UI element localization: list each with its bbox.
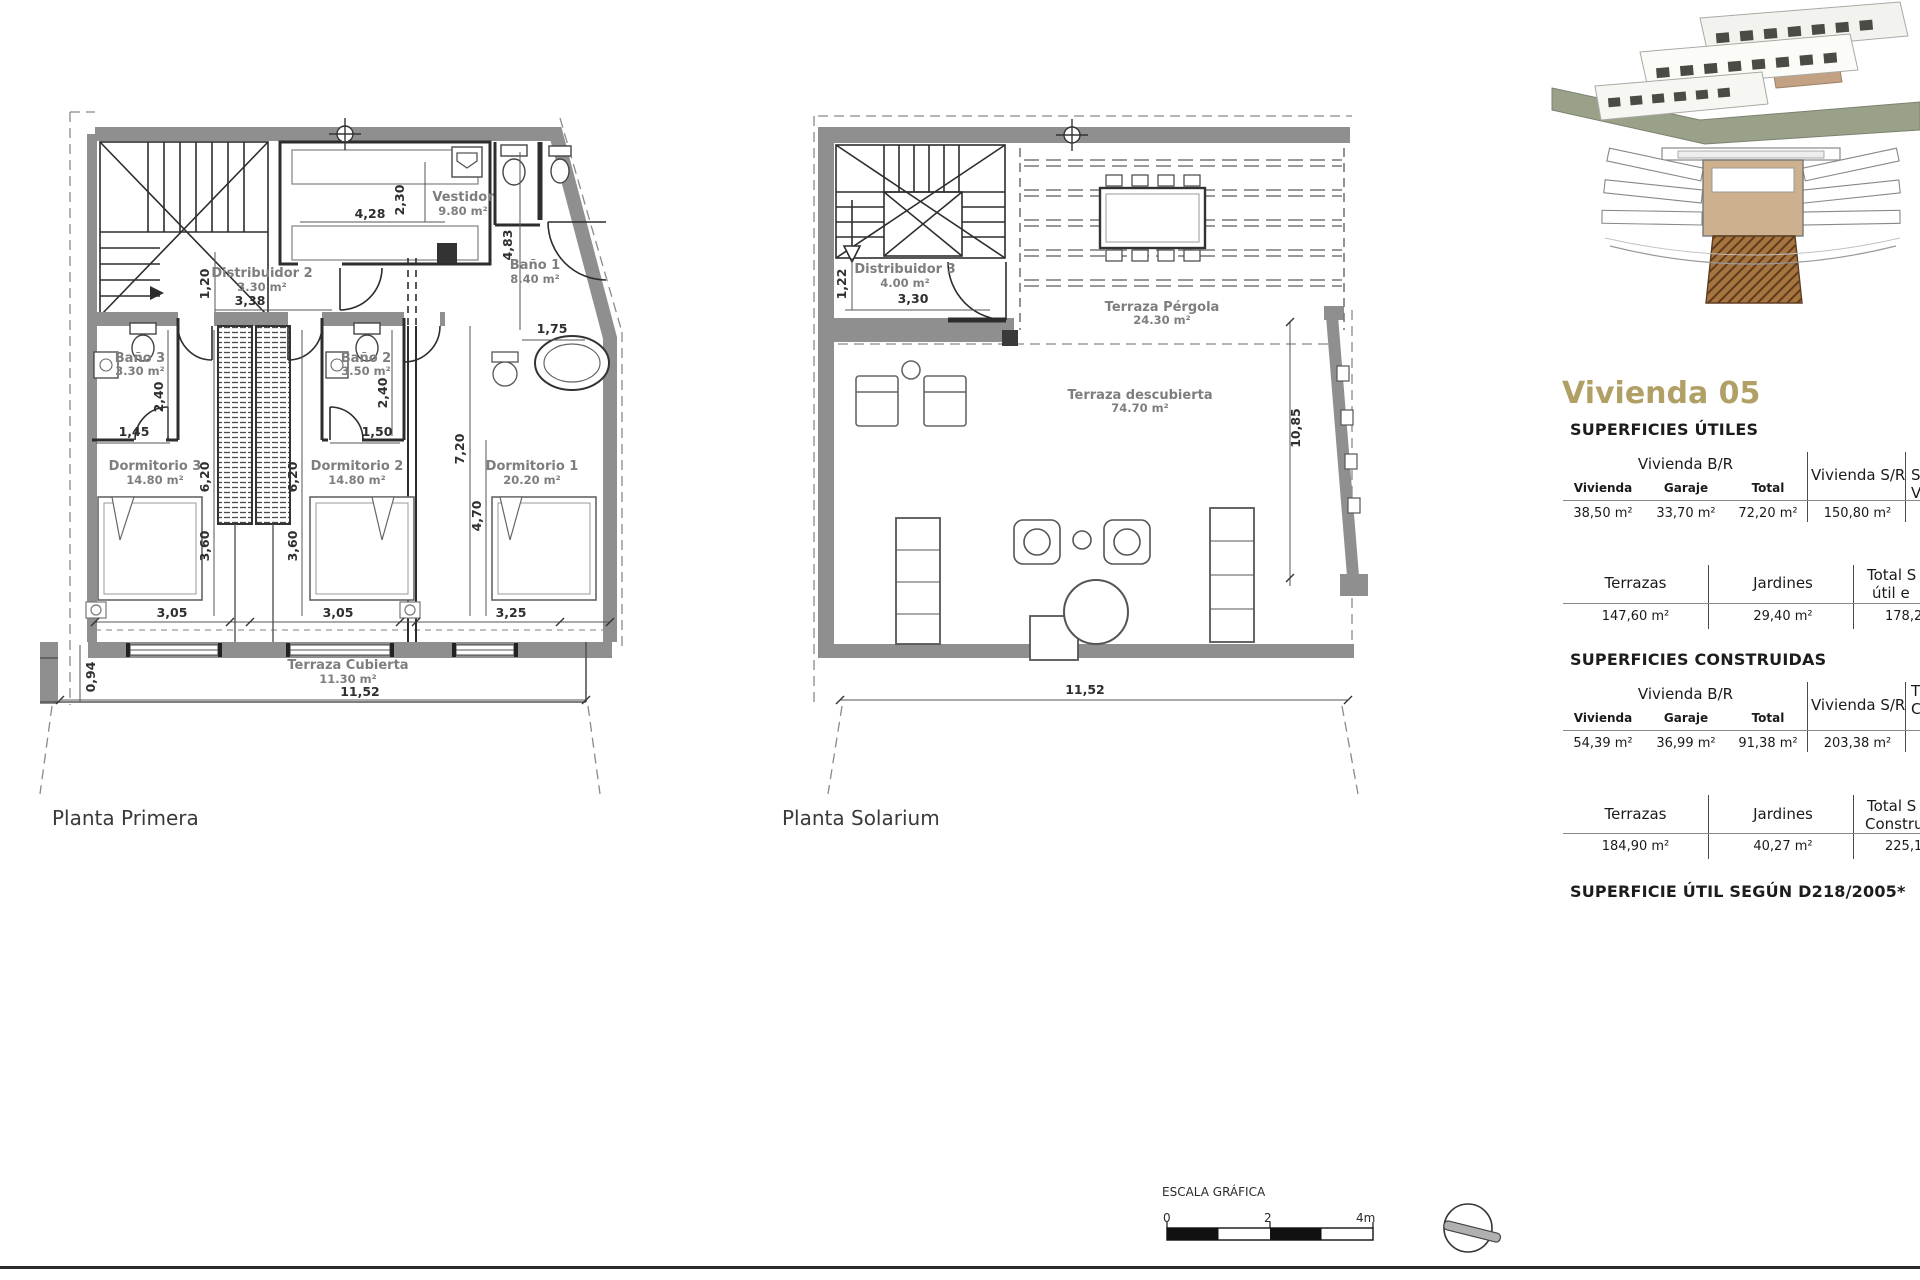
dim-label: 4,28 [355,206,386,221]
dim-label: 3,25 [496,605,527,620]
scale-label: ESCALA GRÁFICA [1162,1184,1266,1199]
col-header: Terrazas [1563,805,1708,823]
north-compass-icon [1443,1204,1501,1252]
room-area: 4.00 m² [880,276,929,290]
room-label: Distribuidor 2 [211,266,312,281]
page-footer-rule [0,1266,1920,1269]
table-rule [1563,603,1920,604]
cut-header: Total S [1867,797,1920,815]
unit-garden-hatch [1706,236,1802,303]
plan2-title: Planta Solarium [782,806,940,830]
bed-icon [98,497,202,600]
dim-label: 1,50 [362,424,393,439]
col-header: Jardines [1713,574,1853,592]
dim-label: 2,40 [151,381,166,412]
room-area: 3.30 m² [115,364,164,378]
cut-header: C [1911,700,1920,718]
table-rule [1563,833,1920,834]
col-header: Vivienda [1563,481,1643,495]
sr-header: Vivienda S/R [1811,696,1904,714]
dim-label: 3,60 [197,530,212,561]
room-area: 8.40 m² [510,272,559,286]
dim-label: 2,30 [392,184,407,215]
dim-label: 0,94 [83,661,98,692]
armchair-icon [1014,520,1150,564]
dim-label: 1,75 [537,321,568,336]
cell-value: 33,70 m² [1646,506,1726,521]
cut-header: útil e [1872,584,1920,602]
cell-value: 29,40 m² [1713,609,1853,624]
room-area: 14.80 m² [328,473,385,487]
utiles-table-1: Vivienda B/R Vivienda Garaje Total Vivie… [1563,450,1920,528]
site-plan-mini [1602,148,1900,303]
dim-label: 3,60 [285,530,300,561]
planta-primera-drawing: Distribuidor 2 3.30 m² Vestidor 9.80 m² … [40,0,840,794]
col-header: Total [1726,481,1810,495]
footnote: SUPERFICIE ÚTIL SEGÚN D218/2005* [1570,882,1906,901]
room-area: 74.70 m² [1111,401,1168,415]
cell-value: 40,27 m² [1713,839,1853,854]
dim-label: 1,20 [197,268,212,299]
bed-icon [310,497,414,600]
sun-lounger-icon [856,361,966,426]
dim-label: 4,83 [500,230,515,261]
dim-label: 6,20 [285,461,300,492]
wardrobe-hatched [218,326,290,642]
sr-header: Vivienda S/R [1811,466,1904,484]
construidas-table-2: Terrazas Jardines Total S Construid 184,… [1563,795,1920,861]
table-divider [1905,452,1906,522]
table-divider [1853,795,1854,859]
plan-sheet: { "page": { "plan1_title": "Planta Prime… [0,0,1920,1280]
sheet-drawing: Distribuidor 2 3.30 m² Vestidor 9.80 m² … [0,0,1920,1280]
dim-label: 4,70 [469,500,484,531]
bathtub-icon [535,336,609,390]
col-header: Terrazas [1563,574,1708,592]
room-area: 3.50 m² [341,364,390,378]
cell-value: 91,38 m² [1726,736,1810,751]
room-label: Dormitorio 2 [311,459,404,474]
construidas-table-1: Vivienda B/R Vivienda Garaje Total Vivie… [1563,680,1920,758]
room-label: Baño 1 [510,258,560,273]
cell-value: 147,60 m² [1563,609,1708,624]
col-header: Garaje [1646,481,1726,495]
plan2-stairs [836,145,1005,262]
dim-label: 3,05 [157,605,188,620]
cell-value: 72,20 m² [1726,506,1810,521]
plan2-door [948,262,1006,320]
cell-value: 178,2 [1885,609,1920,624]
superficies-construidas-heading: SUPERFICIES CONSTRUIDAS [1570,650,1826,669]
cell-value: 225,1 [1885,839,1920,854]
bed-icon [492,497,596,600]
table-divider [1708,795,1709,859]
nightstand-icon [86,602,420,618]
dim-label: 10,85 [1288,408,1303,448]
column-block [437,243,457,263]
scale-bar: ESCALA GRÁFICA 0 2 4m [1162,1184,1375,1240]
cell-value: 36,99 m² [1646,736,1726,751]
planta-solarium-drawing: Distribuidor 3 4.00 m² Terraza Pérgola 2… [814,116,1368,794]
cut-header: S [1911,466,1920,484]
room-area: 24.30 m² [1133,313,1190,327]
cut-header: Construid [1865,815,1920,833]
cut-header: Total S [1867,566,1920,584]
table-divider [1905,682,1906,752]
dim-label: 7,20 [452,433,467,464]
utiles-table-2: Terrazas Jardines Total S útil e 147,60 … [1563,565,1920,631]
table-rule [1563,500,1920,501]
col-header: Jardines [1713,805,1853,823]
toilet-icon [501,145,527,185]
room-label: Dormitorio 3 [109,459,202,474]
dim-label: 6,20 [197,461,212,492]
dim-label: 3,05 [323,605,354,620]
table-divider [1708,565,1709,629]
section-marker-icon [1056,119,1088,151]
bidet-icon [549,146,571,183]
cell-value: 38,50 m² [1563,506,1643,521]
plan1-title: Planta Primera [52,806,199,830]
superficies-utiles-heading: SUPERFICIES ÚTILES [1570,420,1758,439]
dim-label: 1,45 [119,424,150,439]
group-header: Vivienda B/R [1563,685,1808,703]
room-label: Vestidor [432,190,494,205]
cell-value: 54,39 m² [1563,736,1643,751]
cell-value: 184,90 m² [1563,839,1708,854]
table-divider [1853,565,1854,629]
plan1-window-band [88,642,612,658]
room-label: Terraza Cubierta [287,658,408,673]
table-rule [1563,730,1920,731]
dining-table-icon [1100,175,1205,261]
buildings-render [1552,2,1920,144]
col-header: Vivienda [1563,711,1643,725]
dim-label: 3,30 [898,291,929,306]
cell-value: 203,38 m² [1811,736,1904,751]
group-header: Vivienda B/R [1563,455,1808,473]
room-area: 20.20 m² [503,473,560,487]
room-area: 9.80 m² [438,204,487,218]
dim-label: 1,22 [834,269,849,300]
window-flag-icon [452,147,482,177]
col-header: Garaje [1646,711,1726,725]
unit-title: Vivienda 05 [1562,376,1760,411]
dim-label: 2,40 [375,377,390,408]
room-area: 14.80 m² [126,473,183,487]
dim-label: 11,52 [340,684,380,699]
room-label: Distribuidor 3 [854,262,955,277]
col-header: Total [1726,711,1810,725]
cell-value: 150,80 m² [1811,506,1904,521]
room-area: 3.30 m² [237,280,286,294]
room-label: Dormitorio 1 [486,459,579,474]
vanity-icon [492,352,518,386]
cut-header: T [1911,682,1920,700]
dim-label: 3,38 [235,293,266,308]
dim-label: 11,52 [1065,682,1105,697]
